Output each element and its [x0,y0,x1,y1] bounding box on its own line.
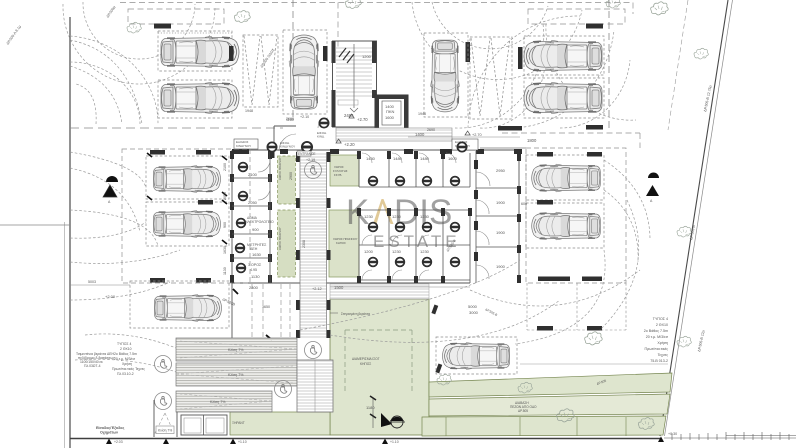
svg-text:2950: 2950 [496,168,506,173]
svg-text:+2.20: +2.20 [344,142,355,147]
svg-text:+2.00: +2.00 [105,294,116,299]
svg-text:ΠΚΝ: ΠΚΝ [386,109,395,114]
svg-text:900: 900 [252,227,259,232]
svg-text:2050: 2050 [223,192,227,200]
svg-text:2ο Βάθος 7.5m: 2ο Βάθος 7.5m [114,352,137,356]
svg-text:2050: 2050 [248,200,258,205]
svg-text:ΤΥΠΟΣ 4: ΤΥΠΟΣ 4 [117,342,131,346]
svg-text:1180: 1180 [366,405,375,410]
svg-text:2100: 2100 [223,163,227,171]
svg-text:20 τ.μ. Μ/3/εσ: 20 τ.μ. Μ/3/εσ [646,335,669,339]
svg-text:1230: 1230 [420,214,430,219]
svg-text:ΤΥΠΟΣ 4: ΤΥΠΟΣ 4 [653,317,668,321]
svg-text:ΚΙΝΔΥΝΟΥ: ΚΙΝΔΥΝΟΥ [236,144,251,148]
svg-text:1400: 1400 [415,132,425,137]
svg-text:ΔΡ.505: ΔΡ.505 [518,409,528,413]
svg-text:ΗΛΕΚΤΡΟΛΟΓΕΙΟ: ΗΛΕΚΤΡΟΛΟΓΕΙΟ [245,220,274,224]
svg-text:Είσοδος/Έξοδος: Είσοδος/Έξοδος [96,426,124,430]
svg-text:1900: 1900 [496,264,506,269]
svg-text:1500: 1500 [334,285,344,290]
svg-text:5003: 5003 [88,280,96,284]
svg-text:75-Β 013-2: 75-Β 013-2 [650,359,668,363]
svg-text:Κλίση 7%: Κλίση 7% [158,429,172,433]
svg-text:+1.10: +1.10 [238,440,247,444]
svg-text:Κλίση 7%: Κλίση 7% [228,348,244,352]
svg-text:Κλίση 7%: Κλίση 7% [210,400,226,404]
svg-text:2800: 2800 [249,285,259,290]
svg-text:+2.70: +2.70 [357,117,368,122]
svg-text:+2.03: +2.03 [114,440,123,444]
svg-text:ΔΕΗ: ΔΕΗ [250,247,258,251]
svg-text:Χρήση: Χρήση [657,341,668,345]
svg-text:1230: 1230 [392,214,402,219]
svg-text:2690: 2690 [427,128,435,132]
svg-text:3000: 3000 [469,310,479,315]
svg-text:ENTRANCE: ENTRANCE [298,152,316,156]
svg-text:1200: 1200 [364,249,374,254]
svg-text:Πρωτ/πια.τικές: Πρωτ/πια.τικές [644,347,668,351]
svg-text:+1.10: +1.10 [390,440,399,444]
svg-text:Πλ.03.10-2: Πλ.03.10-2 [117,372,134,376]
svg-text:+2.70: +2.70 [472,133,482,137]
svg-text:Κλίση 7%: Κλίση 7% [228,373,244,377]
svg-text:1800: 1800 [527,138,537,143]
svg-text:1200: 1200 [362,54,372,59]
svg-text:Στεγασμένη βεράντα: Στεγασμένη βεράντα [341,312,370,316]
svg-text:2100: 2100 [248,172,258,177]
svg-text:900: 900 [223,222,227,228]
svg-text:ΚΙΝΔ.: ΚΙΝΔ. [317,135,325,139]
svg-text:1230: 1230 [364,214,374,219]
svg-text:Οχημάτων: Οχημάτων [100,431,118,435]
svg-text:Πλ.03ΩΤ-4: Πλ.03ΩΤ-4 [84,364,101,368]
svg-text:2900: 2900 [289,172,293,180]
svg-text:+0.30: +0.30 [668,432,677,436]
svg-text:5000: 5000 [468,304,478,309]
svg-text:600: 600 [521,202,527,206]
svg-text:1600: 1600 [385,115,395,120]
svg-text:1230: 1230 [392,249,402,254]
svg-text:+2.12: +2.12 [312,287,322,291]
svg-text:ΧΩΡΟΣ ΠΡΑΣΙΝΟΥ: ΧΩΡΟΣ ΠΡΑΣΙΝΟΥ [278,227,282,250]
svg-text:2 ΘΧ10: 2 ΘΧ10 [656,323,668,327]
svg-text:1948: 1948 [418,112,426,116]
svg-text:1948: 1948 [245,109,253,113]
svg-text:1900: 1900 [496,230,506,235]
svg-text:1630: 1630 [223,246,227,254]
svg-text:Πρωτ/πια.τικές Τεχνες: Πρωτ/πια.τικές Τεχνες [112,367,145,371]
svg-text:+2.19: +2.19 [306,158,315,162]
svg-text:4.95: 4.95 [250,268,257,272]
svg-text:1600: 1600 [448,156,458,161]
svg-text:2308: 2308 [302,240,306,248]
svg-text:ΚΙΝΔΥΝΟΥ: ΚΙΝΔΥΝΟΥ [280,145,295,149]
svg-text:1630: 1630 [252,252,262,257]
svg-text:20 τ.μ. Μ/3/εσ: 20 τ.μ. Μ/3/εσ [114,357,136,361]
svg-text:1230: 1230 [420,249,430,254]
svg-text:2 ΘΧ10: 2 ΘΧ10 [120,347,132,351]
svg-text:ΚΗΠΟΣ: ΚΗΠΟΣ [336,241,346,245]
svg-text:Χρήση: Χρήση [122,362,132,366]
svg-text:ΧΩΡΟΣ ΠΡΑΣΙΝΟΥ: ΧΩΡΟΣ ΠΡΑΣΙΝΟΥ [278,157,282,180]
svg-text:+2.10: +2.10 [300,115,309,119]
svg-text:ΚΗΠΟΣ: ΚΗΠΟΣ [360,362,371,366]
svg-text:ΞΗΡΑΝΤ: ΞΗΡΑΝΤ [232,421,245,425]
svg-text:ΔΙΑΜΕΡΙΣΜΑ ΙΣΟΓ: ΔΙΑΜΕΡΙΣΜΑ ΙΣΟΓ [352,357,380,361]
svg-text:1130: 1130 [223,267,227,275]
svg-text:1130: 1130 [251,274,260,279]
svg-text:1180: 1180 [286,118,294,122]
svg-text:1900: 1900 [496,200,506,205]
svg-text:Τεχνες: Τεχνες [658,353,669,357]
svg-text:3650: 3650 [262,305,270,309]
svg-text:2ο Βάθος 7.5m: 2ο Βάθος 7.5m [644,329,668,333]
svg-text:ΣΚΥΒ.: ΣΚΥΒ. [334,173,342,177]
